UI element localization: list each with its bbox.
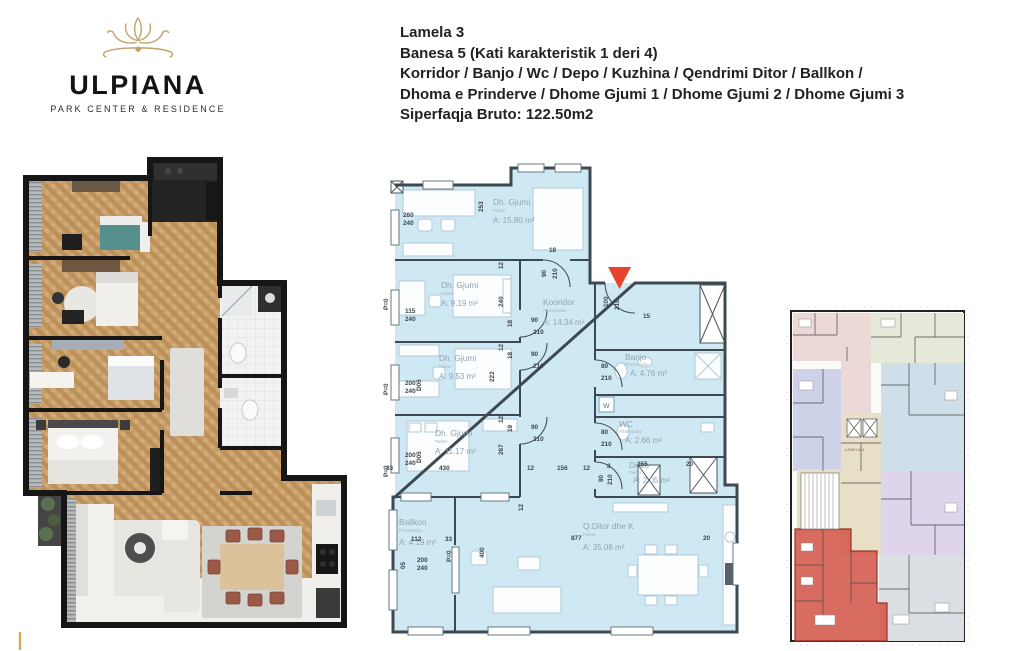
dimension-label: P=0 xyxy=(383,383,390,395)
dimension-label: 240 xyxy=(498,296,505,307)
svg-text:Parket: Parket xyxy=(439,364,452,369)
dimension-label: 90 xyxy=(541,269,548,277)
dimension-label: 90 xyxy=(531,317,539,324)
svg-text:A: 2.05 m²: A: 2.05 m² xyxy=(633,476,670,485)
unit-blue xyxy=(881,363,964,471)
dimension-label: 267 xyxy=(498,444,505,455)
core-label: LAMELA 3 xyxy=(845,448,864,452)
dimension-label: 240 xyxy=(405,460,416,467)
hall-rug xyxy=(170,348,204,436)
lotus-icon xyxy=(93,12,183,64)
washing-machine-icon: W xyxy=(599,397,614,412)
dimension-label: 20 xyxy=(686,461,694,468)
svg-text:Dh. Gjumi: Dh. Gjumi xyxy=(441,280,478,290)
dimension-label: 20 xyxy=(703,535,711,542)
dimension-label: 8 xyxy=(607,463,611,470)
svg-text:A: 4.76 m²: A: 4.76 m² xyxy=(630,369,667,378)
dimension-label: 200 xyxy=(417,557,428,564)
svg-text:A: 11.17 m²: A: 11.17 m² xyxy=(435,447,476,456)
svg-text:A: 2.66 m²: A: 2.66 m² xyxy=(625,436,662,445)
dimension-label: 05 xyxy=(400,561,407,569)
lamela-line: Lamela 3 xyxy=(400,23,990,44)
svg-text:Q.Ditor dhe K: Q.Ditor dhe K xyxy=(583,521,634,531)
apartment-description: Lamela 3 Banesa 5 (Kati karakteristik 1 … xyxy=(400,23,990,126)
3d-floorplan-render xyxy=(12,148,352,650)
dimension-label: D05 xyxy=(416,451,423,463)
dimension-label: 400 xyxy=(479,547,486,558)
dimension-label: P=0 xyxy=(446,550,453,562)
dimension-label: 240 xyxy=(417,565,428,572)
dimension-label: 19 xyxy=(507,424,514,432)
unit-purple xyxy=(881,471,964,555)
svg-text:A: 15.80 m²: A: 15.80 m² xyxy=(493,216,535,225)
svg-text:A: 35.08 m²: A: 35.08 m² xyxy=(583,543,625,552)
dimension-label: 877 xyxy=(571,535,582,542)
area-line: Siperfaqja Bruto: 122.50m2 xyxy=(400,105,990,126)
dimension-label: 90 xyxy=(531,424,539,431)
dimension-label: P=0 xyxy=(383,465,390,477)
dimension-label: 222 xyxy=(489,371,496,382)
dimension-label: D05 xyxy=(416,379,423,391)
svg-text:W: W xyxy=(603,403,610,410)
rooms-line-1: Korridor / Banjo / Wc / Depo / Kuzhina /… xyxy=(400,64,990,85)
svg-text:Pll.Keramike: Pll.Keramike xyxy=(625,362,649,367)
dimension-label: 210 xyxy=(533,436,544,443)
svg-text:Banjo: Banjo xyxy=(625,352,647,362)
dimension-label: 210 xyxy=(601,441,612,448)
kitchen-cabinets-3d xyxy=(152,160,220,222)
dimension-label: 80 xyxy=(601,363,609,370)
dimension-label: 100 xyxy=(603,296,610,307)
dimension-label: 156 xyxy=(557,465,568,472)
svg-text:Dh. Gjumi: Dh. Gjumi xyxy=(439,353,476,363)
dimension-label: 12 xyxy=(498,415,505,423)
dimension-label: 18 xyxy=(507,319,514,327)
brand-tagline: PARK CENTER & RESIDENCE xyxy=(42,104,234,114)
svg-text:A: 14.34 m²: A: 14.34 m² xyxy=(543,318,585,327)
svg-text:Dh. Gjumi: Dh. Gjumi xyxy=(435,428,472,438)
stairwell xyxy=(801,473,839,529)
dimension-label: 255 xyxy=(637,461,648,468)
svg-text:Parket: Parket xyxy=(493,208,506,213)
svg-text:Pll.keramike: Pll.keramike xyxy=(619,429,642,434)
balcony-plants-3d xyxy=(38,494,64,546)
dimension-label: 12 xyxy=(498,261,505,269)
dimension-label: 15 xyxy=(643,313,651,320)
dimension-label: 210 xyxy=(533,363,544,370)
dimension-label: 210 xyxy=(607,474,614,485)
floorplan-brochure-page: { "logo": { "brand": "ULPIANA", "tagline… xyxy=(0,0,1024,651)
dimension-label: 12 xyxy=(583,465,591,472)
dimension-label: 240 xyxy=(405,388,416,395)
svg-text:WC: WC xyxy=(619,419,633,429)
dimension-label: 240 xyxy=(405,316,416,323)
svg-text:Parket: Parket xyxy=(435,439,448,444)
dimension-label: P=0 xyxy=(383,298,390,310)
dimension-label: 430 xyxy=(439,465,450,472)
dimension-label: 112 xyxy=(411,536,422,543)
dimension-label: 80 xyxy=(601,429,609,436)
dimension-label: 33 xyxy=(445,536,453,543)
dimension-label: 80 xyxy=(598,474,605,482)
rooms-line-2: Dhoma e Prinderve / Dhome Gjumi 1 / Dhom… xyxy=(400,85,990,106)
svg-text:A: 9.53 m²: A: 9.53 m² xyxy=(439,372,476,381)
svg-text:Parket: Parket xyxy=(583,532,596,537)
dimension-label: 12 xyxy=(527,465,535,472)
dimension-label: 240 xyxy=(403,220,414,227)
svg-text:Ballkon: Ballkon xyxy=(399,517,427,527)
dimension-label: 12 xyxy=(518,503,525,511)
dimension-label: 253 xyxy=(478,201,485,212)
svg-text:A: 9.19 m²: A: 9.19 m² xyxy=(441,299,478,308)
dimension-label: 200 xyxy=(405,452,416,459)
dimension-label: 12 xyxy=(498,343,505,351)
banesa-line: Banesa 5 (Kati karakteristik 1 deri 4) xyxy=(400,44,990,65)
brand-logo: ULPIANA PARK CENTER & RESIDENCE xyxy=(42,12,234,114)
dimension-label: 210 xyxy=(601,375,612,382)
dimension-label: 18 xyxy=(507,351,514,359)
dimension-label: 210 xyxy=(533,329,544,336)
svg-text:Parket: Parket xyxy=(629,470,642,475)
dimension-label: 200 xyxy=(405,380,416,387)
2d-floorplan-drawing: W Dh. Gjumi Parket A: 15.80 m² Dh. Gjumi… xyxy=(383,155,739,647)
unit-gray xyxy=(879,555,964,641)
svg-text:Dh. Gjumi: Dh. Gjumi xyxy=(493,197,530,207)
dimension-label: 210 xyxy=(614,299,621,310)
dimension-label: 260 xyxy=(403,212,414,219)
brand-name: ULPIANA xyxy=(42,70,234,101)
dimension-label: 18 xyxy=(549,247,557,254)
dimension-label: 115 xyxy=(405,308,416,315)
svg-text:Parket: Parket xyxy=(441,291,454,296)
building-floor-plate: LAMELA 3 xyxy=(785,303,970,648)
svg-text:Kooridor: Kooridor xyxy=(543,297,575,307)
svg-text:Pll.Keramike: Pll.Keramike xyxy=(399,528,423,533)
dimension-label: 210 xyxy=(552,268,559,279)
dimension-label: 90 xyxy=(531,351,539,358)
svg-text:Pll.Keramike: Pll.Keramike xyxy=(543,308,567,313)
